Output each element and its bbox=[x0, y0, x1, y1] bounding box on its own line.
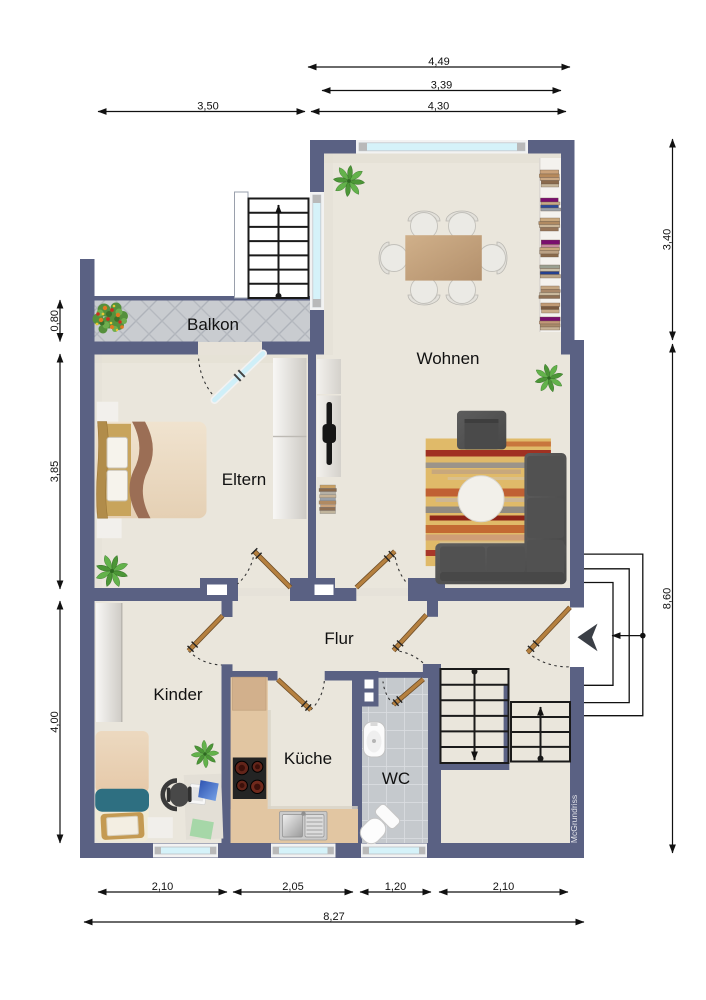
svg-text:1,20: 1,20 bbox=[385, 881, 406, 893]
svg-text:Eltern: Eltern bbox=[222, 470, 266, 489]
svg-text:2,05: 2,05 bbox=[282, 881, 303, 893]
svg-text:3,39: 3,39 bbox=[431, 80, 452, 92]
svg-text:3,40: 3,40 bbox=[662, 229, 674, 250]
svg-text:Wohnen: Wohnen bbox=[416, 349, 479, 368]
svg-text:4,00: 4,00 bbox=[49, 711, 61, 732]
svg-text:4,49: 4,49 bbox=[428, 56, 449, 68]
svg-text:8,60: 8,60 bbox=[662, 588, 674, 609]
svg-text:3,50: 3,50 bbox=[197, 101, 218, 113]
svg-text:3,85: 3,85 bbox=[49, 461, 61, 482]
svg-text:Küche: Küche bbox=[284, 749, 332, 768]
svg-text:8,27: 8,27 bbox=[323, 911, 344, 923]
svg-text:2,10: 2,10 bbox=[152, 881, 173, 893]
svg-text:Balkon: Balkon bbox=[187, 315, 239, 334]
svg-text:Flur: Flur bbox=[324, 629, 354, 648]
svg-text:0,80: 0,80 bbox=[49, 310, 61, 331]
svg-text:2,10: 2,10 bbox=[493, 881, 514, 893]
svg-text:McGrundriss: McGrundriss bbox=[569, 795, 579, 843]
svg-text:Kinder: Kinder bbox=[153, 685, 202, 704]
svg-text:4,30: 4,30 bbox=[428, 101, 449, 113]
svg-text:WC: WC bbox=[382, 769, 410, 788]
